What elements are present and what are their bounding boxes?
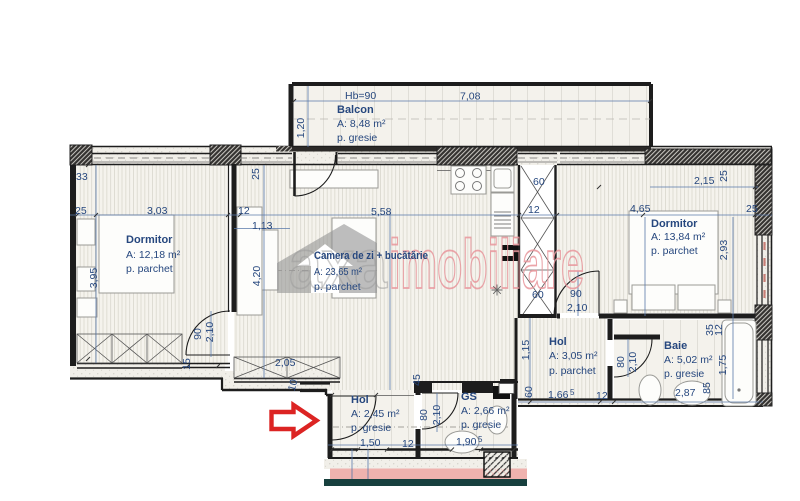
svg-text:25: 25 [746,203,758,215]
svg-text:p. gresie: p. gresie [351,422,391,434]
svg-text:p. parchet: p. parchet [549,365,596,377]
svg-text:12: 12 [713,324,725,336]
svg-text:A: 12,18 m²: A: 12,18 m² [126,249,181,261]
svg-text:80: 80 [418,409,430,421]
svg-text:5,58: 5,58 [371,206,392,218]
svg-text:2,10: 2,10 [204,322,216,343]
svg-text:p. parchet: p. parchet [314,281,361,293]
svg-text:3,03: 3,03 [147,205,168,217]
svg-text:Dormitor: Dormitor [651,218,698,230]
svg-text:80: 80 [615,356,627,368]
svg-text:p. gresie: p. gresie [664,368,704,380]
svg-text:Hol: Hol [351,394,369,406]
svg-text:5: 5 [478,435,483,444]
svg-text:A: 23,65 m²: A: 23,65 m² [314,266,362,278]
svg-text:1,75: 1,75 [717,355,729,376]
svg-text:Hb=90: Hb=90 [345,90,376,102]
svg-text:12: 12 [528,204,540,216]
svg-text:Dormitor: Dormitor [126,234,173,246]
svg-text:1,15: 1,15 [520,340,532,361]
svg-text:5: 5 [570,388,575,397]
svg-text:1,50: 1,50 [360,437,381,449]
svg-text:12: 12 [402,438,414,450]
svg-text:7,08: 7,08 [460,91,481,103]
svg-text:60: 60 [533,176,545,188]
svg-text:Balcon: Balcon [337,104,374,116]
svg-text:imobiliare: imobiliare [389,225,584,303]
svg-text:1,13: 1,13 [252,220,273,232]
svg-text:1,20: 1,20 [295,118,307,139]
svg-text:2,10: 2,10 [567,302,588,314]
svg-text:4,20: 4,20 [251,266,263,287]
svg-text:85: 85 [701,382,713,394]
svg-text:p. gresie: p. gresie [461,419,501,431]
svg-text:25: 25 [75,205,87,217]
svg-text:25: 25 [250,168,262,180]
svg-text:A: 8,48 m²: A: 8,48 m² [337,118,386,130]
svg-text:GS: GS [461,391,477,403]
svg-text:15: 15 [181,358,193,370]
svg-text:Camera de zi + bucătărie: Camera de zi + bucătărie [314,250,428,262]
svg-text:4,65: 4,65 [630,203,651,215]
svg-text:1,90: 1,90 [456,436,477,448]
svg-text:2,93: 2,93 [718,240,730,261]
svg-text:A: 13,84 m²: A: 13,84 m² [651,231,706,243]
svg-text:A: 2,66 m²: A: 2,66 m² [461,405,510,417]
svg-text:3,95: 3,95 [88,268,100,289]
svg-text:2,15: 2,15 [694,175,715,187]
svg-text:90: 90 [192,328,204,340]
svg-text:p. parchet: p. parchet [651,245,698,257]
svg-text:A: 5,02 m²: A: 5,02 m² [664,354,713,366]
svg-text:p. parchet: p. parchet [126,263,173,275]
svg-text:12: 12 [596,390,608,402]
svg-text:25: 25 [718,170,730,182]
svg-text:33: 33 [76,171,88,183]
svg-text:2,10: 2,10 [627,352,639,373]
svg-text:Baie: Baie [664,340,687,352]
svg-text:2,05: 2,05 [275,357,296,369]
svg-text:60: 60 [523,386,535,398]
svg-text:45: 45 [411,374,423,386]
svg-text:A: 2,45 m²: A: 2,45 m² [351,408,400,420]
svg-text:p. gresie: p. gresie [337,132,377,144]
svg-text:12: 12 [238,205,250,217]
svg-text:1,66: 1,66 [548,389,569,401]
svg-text:2,10: 2,10 [431,405,443,426]
svg-text:2,87: 2,87 [675,387,696,399]
svg-text:Hol: Hol [549,336,567,348]
svg-text:A: 3,05 m²: A: 3,05 m² [549,350,598,362]
